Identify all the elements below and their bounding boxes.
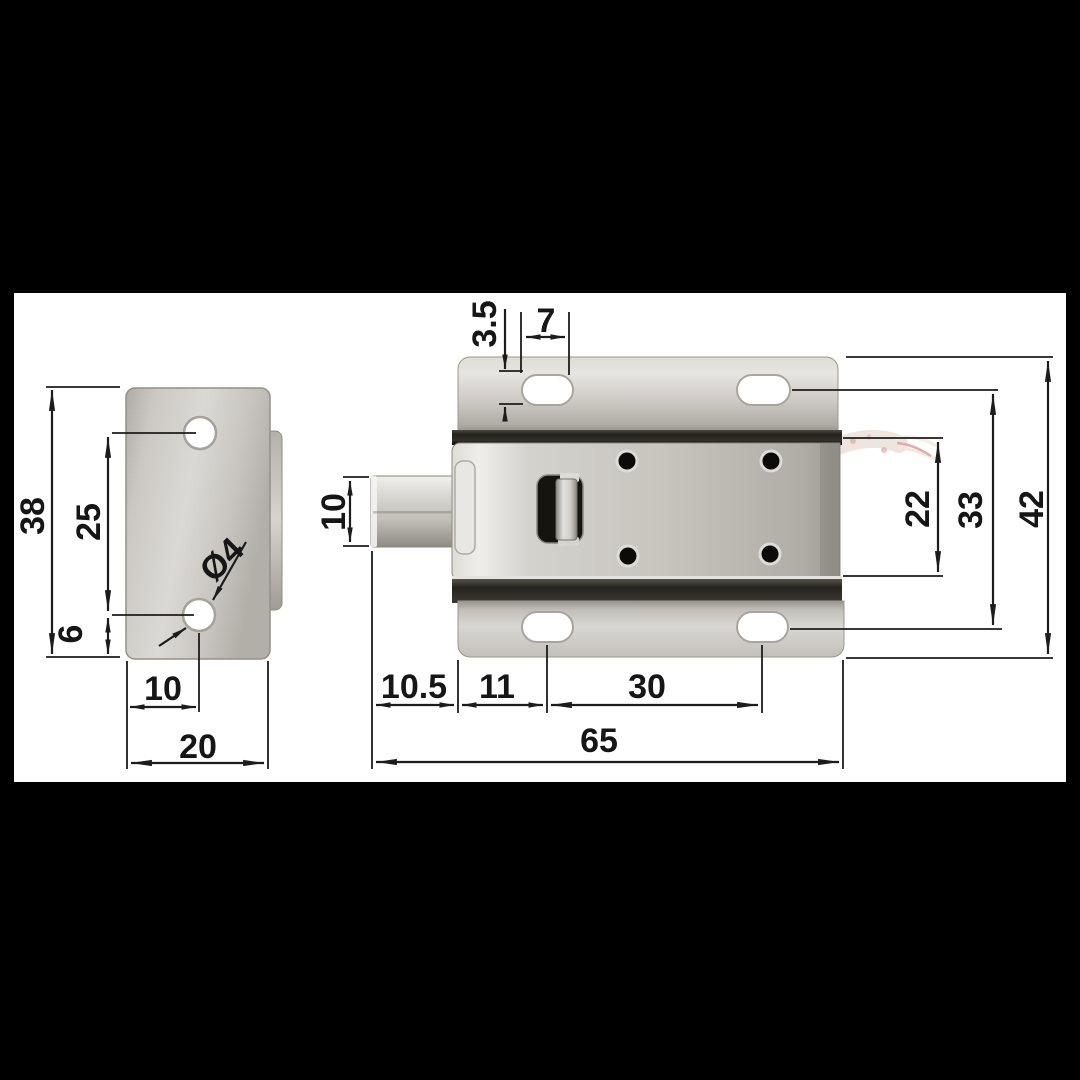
dim-label-latch-protrusion: 10.5 [381, 668, 447, 706]
body-hole-top-right [761, 451, 781, 471]
dim-label-hole-to-bottom: 6 [52, 625, 90, 644]
dim-label-plate-height: 38 [14, 497, 52, 535]
slider-opening [537, 473, 583, 546]
body-hole-bottom-left [618, 546, 638, 566]
mounting-slot-top-right [737, 375, 790, 405]
dim-label-flange-height: 42 [1013, 490, 1051, 528]
body-right-edge-shade [820, 443, 840, 580]
wire-pink-speckle [881, 447, 887, 453]
mounting-slot-top-left [522, 375, 573, 405]
dim-label-total-length: 65 [580, 722, 618, 760]
dim-label-edge-to-slot: 11 [479, 668, 515, 706]
dim-label-slot-spacing: 30 [628, 668, 666, 706]
dim-label-slot-long: 7 [537, 302, 556, 340]
dim-label-slot-short: 3.5 [466, 300, 504, 347]
latch-edge-line [373, 511, 455, 514]
body-hole-top-left [617, 451, 637, 471]
latch-guide-plate [455, 461, 475, 554]
dim-label-hole-spacing: 25 [70, 503, 108, 541]
dim-label-latch-height: 10 [315, 493, 353, 531]
latch-bolt [371, 476, 456, 547]
dim-label-body-height: 22 [899, 490, 937, 528]
body-hole-bottom-right [760, 544, 780, 564]
frame-top-bar [0, 0, 1080, 293]
mounting-slot-bottom-right [737, 612, 788, 642]
frame-left-strip [0, 293, 14, 782]
body-bottom-highlight [452, 576, 842, 579]
frame-bottom-bar [0, 782, 1080, 1080]
lock-dimension-drawing: 38 25 6 Ø4 10 20 3.5 7 10 22 33 42 10.5 … [0, 0, 1080, 1080]
dimension-drawing-canvas: 38 25 6 Ø4 10 20 3.5 7 10 22 33 42 10.5 … [0, 0, 1080, 1080]
frame-right-strip [1066, 293, 1080, 782]
dim-label-hole-offset: 10 [144, 670, 182, 708]
dim-label-plate-width: 20 [179, 728, 217, 766]
mounting-slot-bottom-left [522, 612, 573, 642]
wire-sleeve [836, 439, 899, 447]
strike-plate-view [126, 388, 282, 659]
slider-button [556, 479, 577, 540]
dim-label-slot-rows-spacing: 33 [952, 491, 990, 529]
bottom-seam [452, 579, 842, 603]
